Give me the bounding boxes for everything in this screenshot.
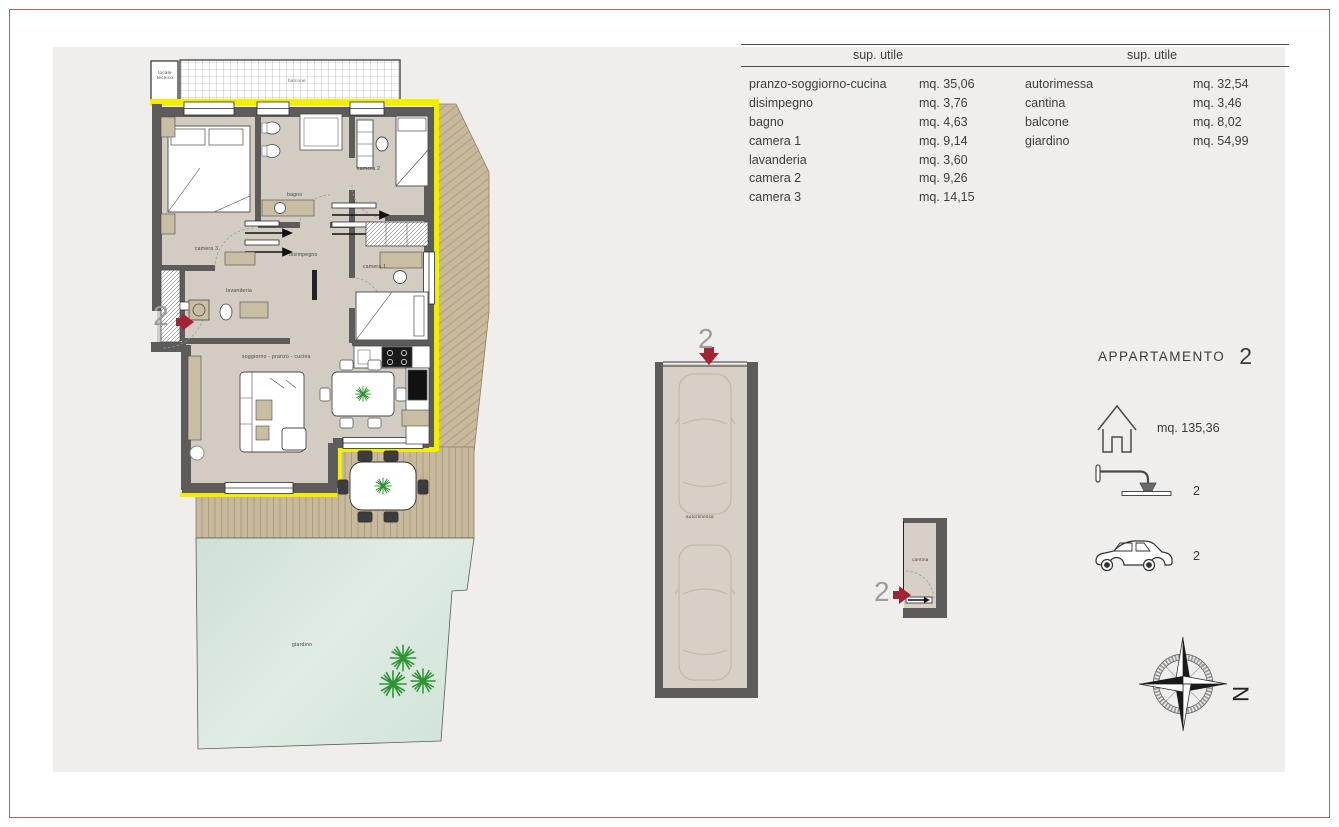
surface-table-left-column: pranzo-soggiorno-cucinamq. 35,06 disimpe… <box>741 75 1015 207</box>
surface-table: sup. utile sup. utile pranzo-soggiorno-c… <box>741 44 1289 207</box>
apartment-number: 2 <box>1239 343 1252 370</box>
compass-north-label: N <box>1228 686 1253 702</box>
label-balcony: balcone <box>288 78 306 83</box>
surface-table-right-column: autorimessamq. 32,54 cantinamq. 3,46 bal… <box>1015 75 1289 207</box>
table-row: bagnomq. 4,63 <box>741 113 1015 132</box>
shower-icon <box>1096 465 1171 496</box>
garden <box>196 538 474 749</box>
label-disimpegno: disimpegno <box>289 252 318 258</box>
compass-rose-icon: N <box>1139 637 1253 731</box>
surface-table-header: sup. utile sup. utile <box>741 45 1289 67</box>
table-header-left: sup. utile <box>741 48 1015 62</box>
table-row: autorimessamq. 32,54 <box>1015 75 1289 94</box>
label-camera1: camera 1 <box>363 264 386 270</box>
table-row: camera 2mq. 9,26 <box>741 169 1015 188</box>
label-cantina: cantina <box>912 557 929 562</box>
bathrooms-count: 2 <box>1193 484 1200 498</box>
table-row: camera 1mq. 9,14 <box>741 131 1015 150</box>
cellar-entrance-marker: 2 <box>874 576 890 608</box>
apartment-entrance-marker: 2 <box>153 300 169 332</box>
table-row: giardinomq. 54,99 <box>1015 131 1289 150</box>
garage <box>655 362 758 698</box>
apartment-title-text: APPARTAMENTO <box>1098 349 1225 364</box>
house-icon <box>1098 406 1136 452</box>
label-autorimessa: autorimessa <box>686 514 714 519</box>
table-header-right: sup. utile <box>1015 48 1289 62</box>
car-icon <box>1096 541 1172 571</box>
table-row: cantinamq. 3,46 <box>1015 94 1289 113</box>
table-row: pranzo-soggiorno-cucinamq. 35,06 <box>741 75 1015 94</box>
plan-sheet: N balcone locale tecnico camera 3 bagno … <box>0 0 1339 827</box>
cellar <box>903 518 947 618</box>
table-row: balconemq. 8,02 <box>1015 113 1289 132</box>
balcony <box>151 60 400 100</box>
label-giardino: giardino <box>292 642 312 648</box>
label-lavanderia: lavanderia <box>226 288 252 294</box>
table-row: lavanderiamq. 3,60 <box>741 150 1015 169</box>
cars-count: 2 <box>1193 549 1200 563</box>
label-bagno: bagno <box>287 192 302 198</box>
table-row: disimpegnomq. 3,76 <box>741 94 1015 113</box>
total-area-value: mq. 135,36 <box>1157 421 1220 435</box>
table-row: camera 3mq. 14,15 <box>741 188 1015 207</box>
label-camera3: camera 3 <box>195 246 218 252</box>
label-camera2: camera 2 <box>357 166 380 172</box>
label-soggiorno: soggiorno - pranzo - cucina <box>242 354 311 360</box>
garage-entrance-marker: 2 <box>698 323 714 355</box>
label-technical-room: locale tecnico <box>153 70 177 81</box>
apartment-title: APPARTAMENTO 2 <box>1098 343 1252 370</box>
